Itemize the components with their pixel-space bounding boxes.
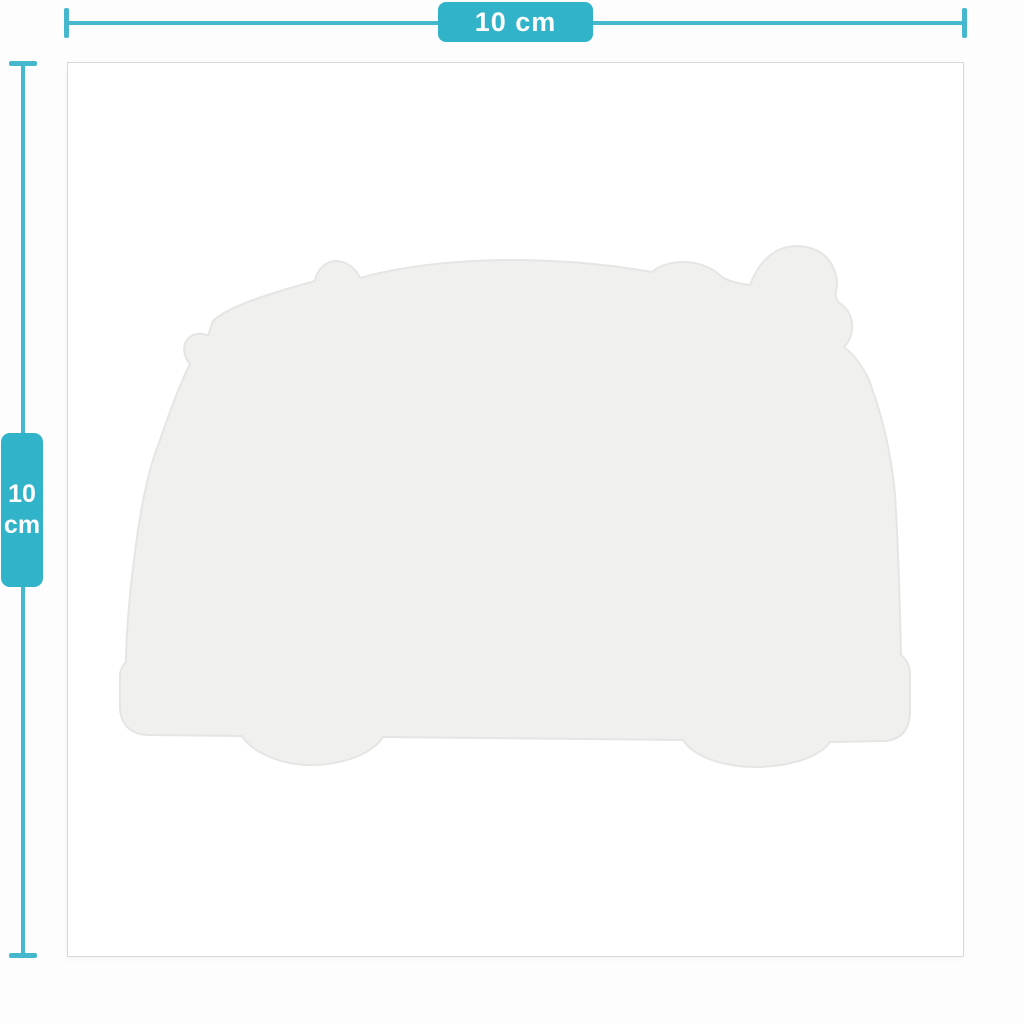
width-dimension-text: 10 cm: [475, 7, 557, 38]
height-dimension-unit: cm: [4, 510, 40, 541]
size-diagram: 10 cm 10 cm: [0, 0, 1024, 1024]
height-dimension-value: 10: [8, 479, 36, 510]
product-card: [67, 62, 964, 957]
width-ruler-left-cap: [64, 8, 69, 38]
height-ruler-top-cap: [9, 61, 37, 66]
height-dimension-label: 10 cm: [1, 433, 43, 587]
width-ruler-right-cap: [962, 8, 967, 38]
width-dimension-label: 10 cm: [438, 2, 593, 42]
height-ruler-bottom-cap: [9, 953, 37, 958]
